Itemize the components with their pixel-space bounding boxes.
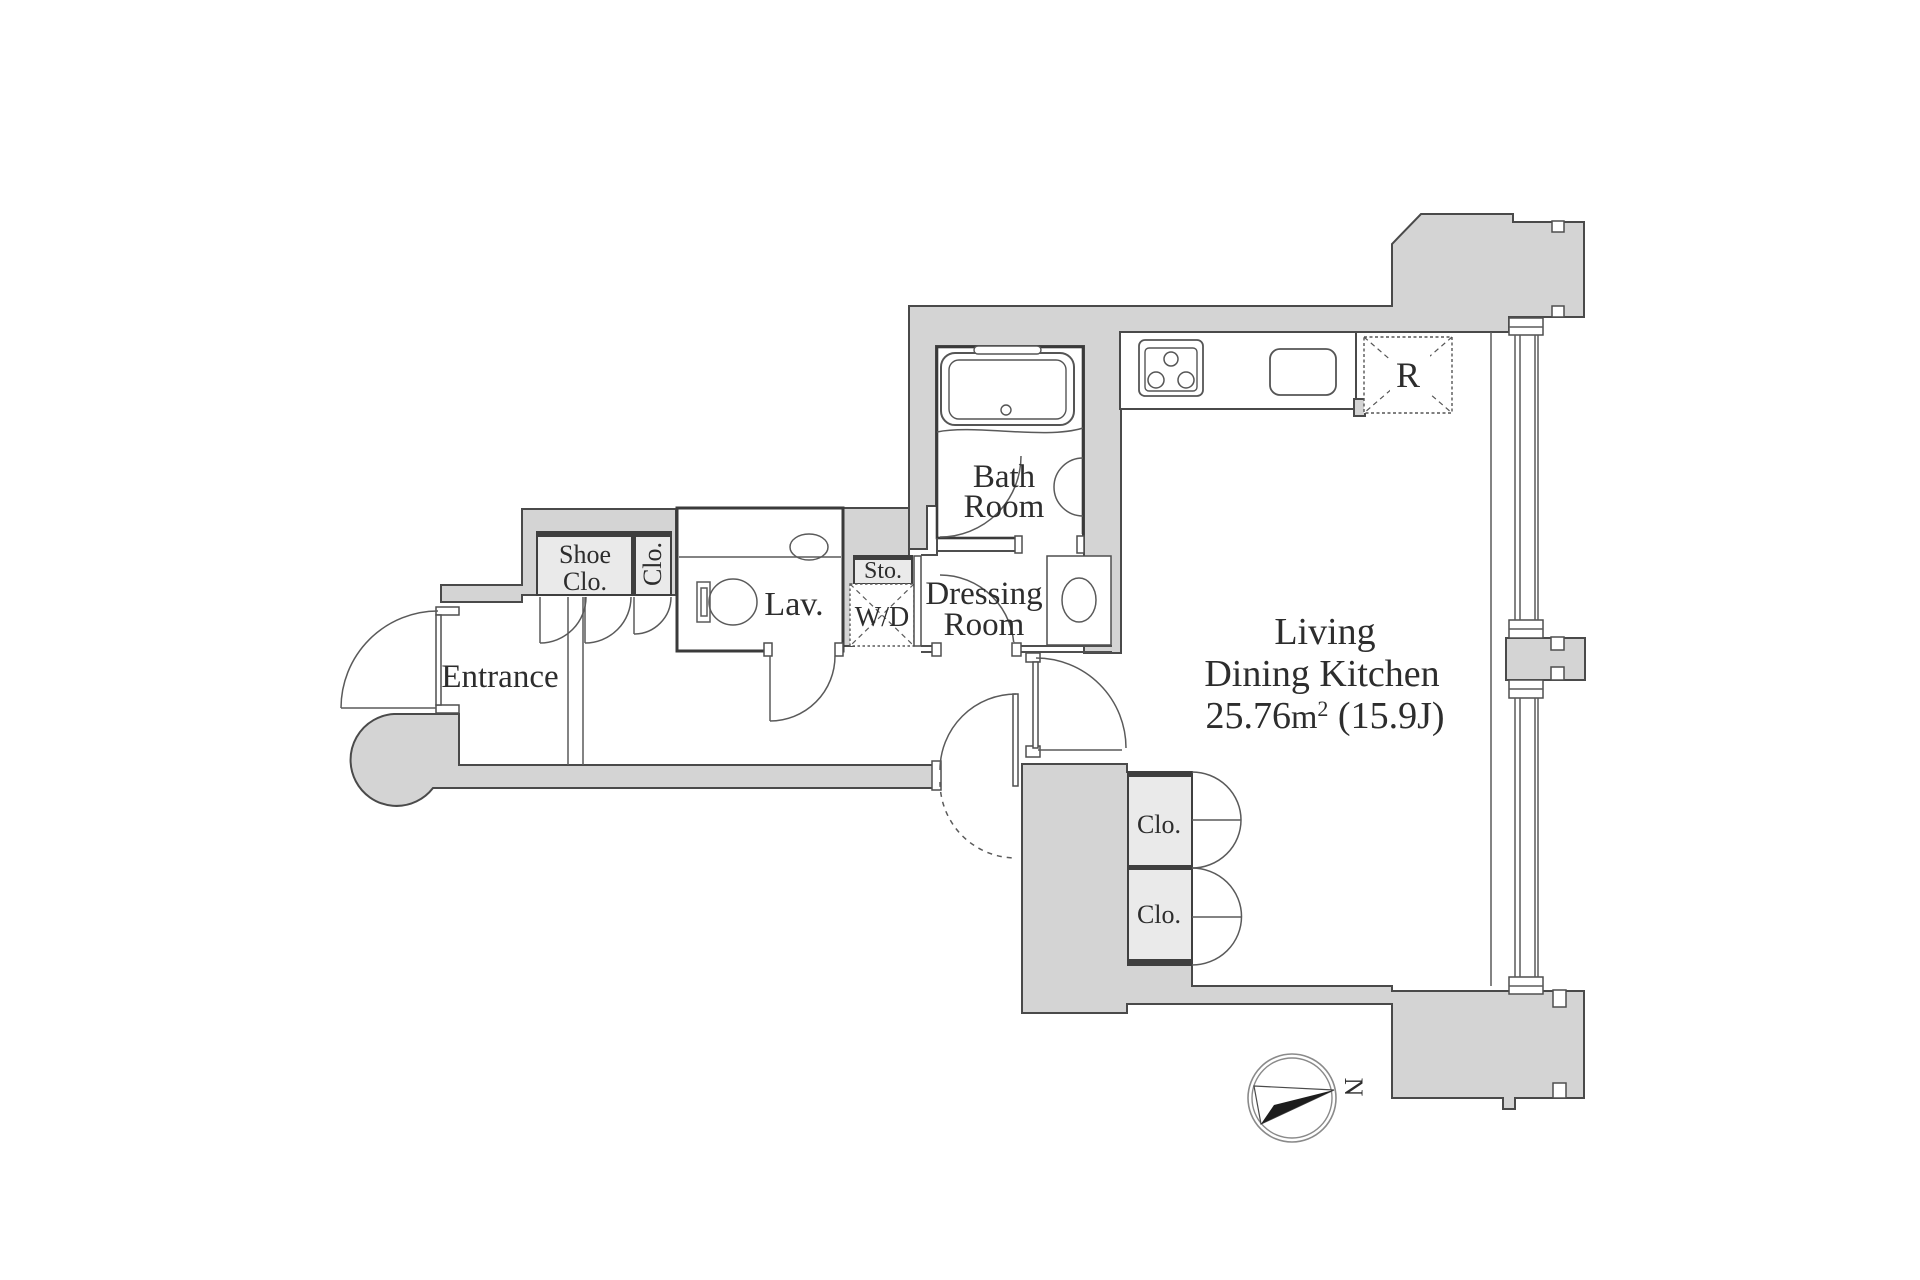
svg-text:Room: Room <box>964 489 1045 525</box>
svg-text:Clo.: Clo. <box>1137 810 1181 839</box>
svg-text:Shoe: Shoe <box>559 540 611 569</box>
svg-text:25.76m2 (15.9J): 25.76m2 (15.9J) <box>1205 695 1444 737</box>
svg-text:Clo.: Clo. <box>1137 900 1181 929</box>
svg-text:R: R <box>1396 355 1420 395</box>
svg-text:W/D: W/D <box>855 602 909 633</box>
svg-text:Room: Room <box>944 607 1025 643</box>
svg-text:Lav.: Lav. <box>764 586 823 623</box>
svg-text:Clo.: Clo. <box>638 542 667 586</box>
svg-text:Entrance: Entrance <box>441 659 558 695</box>
svg-text:N: N <box>1339 1078 1368 1097</box>
svg-text:Sto.: Sto. <box>864 558 902 584</box>
svg-text:Dining Kitchen: Dining Kitchen <box>1204 653 1439 695</box>
svg-text:Living: Living <box>1274 611 1375 653</box>
svg-text:Clo.: Clo. <box>563 567 607 596</box>
